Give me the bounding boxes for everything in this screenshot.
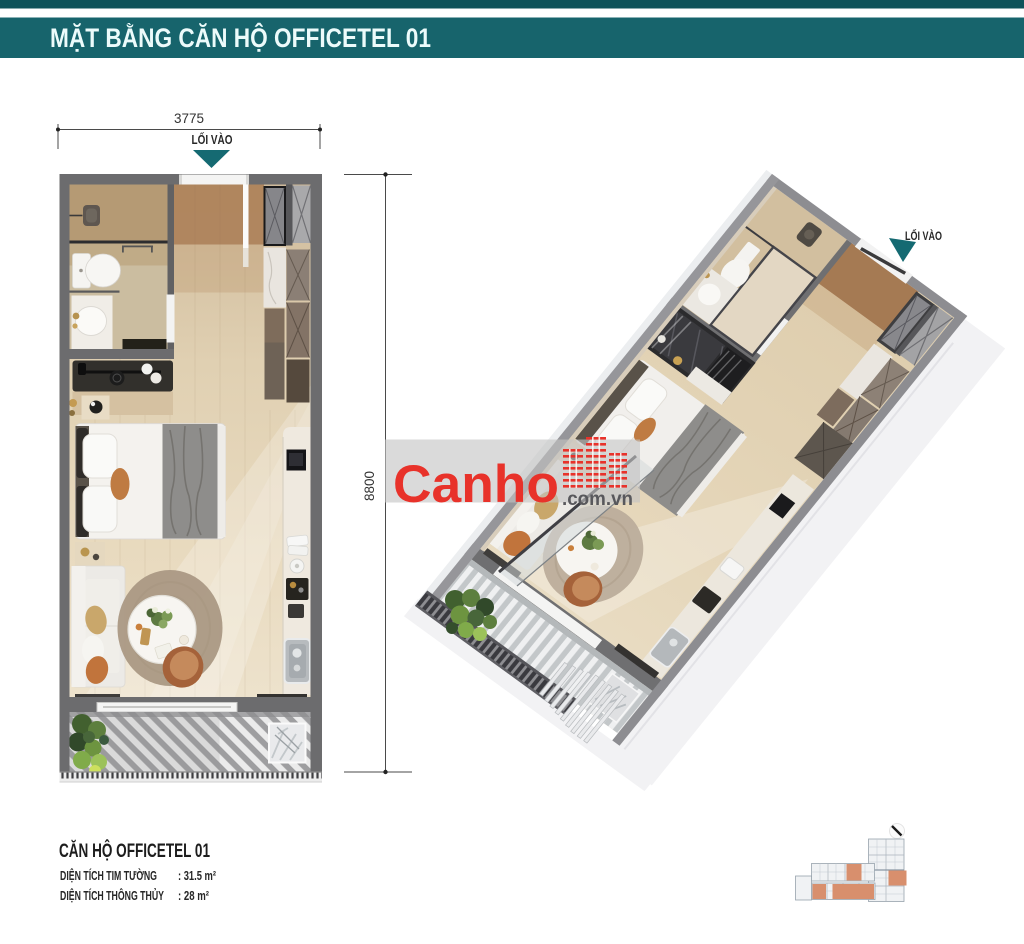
svg-text:3775: 3775 <box>174 111 204 126</box>
svg-text:MẶT BẰNG CĂN HỘ OFFICETEL 01: MẶT BẰNG CĂN HỘ OFFICETEL 01 <box>50 22 431 53</box>
svg-text:DIỆN TÍCH TIM TƯỜNG: DIỆN TÍCH TIM TƯỜNG <box>60 868 157 883</box>
svg-text:Canho: Canho <box>393 455 559 514</box>
svg-text:.com.vn: .com.vn <box>562 489 633 510</box>
svg-text:CĂN HỘ OFFICETEL 01: CĂN HỘ OFFICETEL 01 <box>59 838 210 862</box>
svg-text:: 31.5 m²: : 31.5 m² <box>178 868 216 883</box>
svg-text:LỐI VÀO: LỐI VÀO <box>192 132 233 147</box>
svg-text:: 28 m²: : 28 m² <box>178 888 209 903</box>
svg-text:LỐI VÀO: LỐI VÀO <box>905 229 942 243</box>
svg-text:DIỆN TÍCH THÔNG THỦY: DIỆN TÍCH THÔNG THỦY <box>60 888 164 903</box>
svg-text:8800: 8800 <box>362 471 377 501</box>
